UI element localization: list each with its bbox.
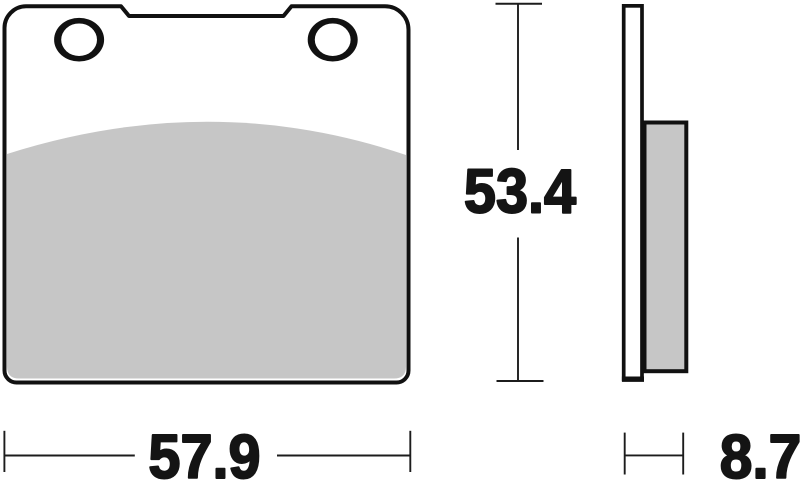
svg-text:53.4: 53.4	[464, 157, 576, 226]
svg-text:8.7: 8.7	[720, 422, 800, 481]
svg-text:57.9: 57.9	[148, 422, 260, 481]
